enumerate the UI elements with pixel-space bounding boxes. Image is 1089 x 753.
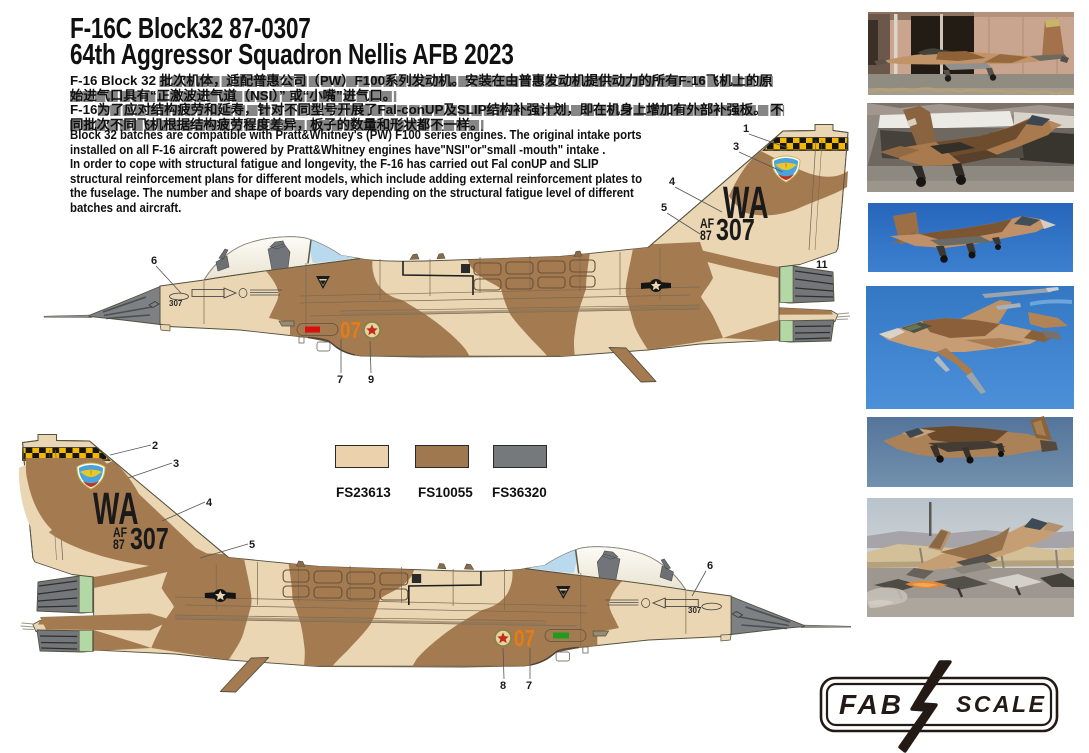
svg-text:SCALE: SCALE: [956, 691, 1046, 717]
svg-text:FAB: FAB: [839, 689, 904, 720]
